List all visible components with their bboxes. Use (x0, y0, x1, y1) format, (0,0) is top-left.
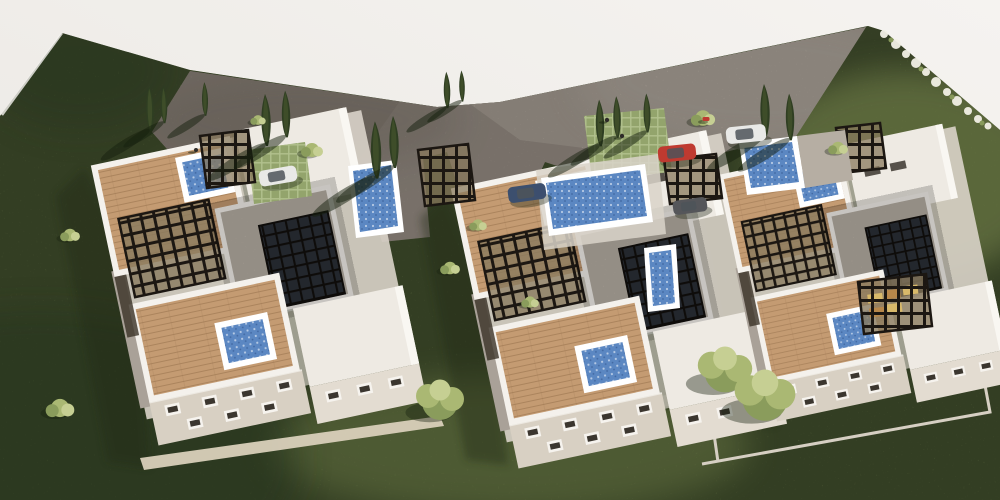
carport-pergola (418, 144, 475, 206)
lap-pool-center-block (644, 244, 680, 312)
rendering-canvas (0, 0, 1000, 500)
aerial-render (0, 0, 1000, 500)
sun-lounger-pergola (858, 274, 932, 334)
